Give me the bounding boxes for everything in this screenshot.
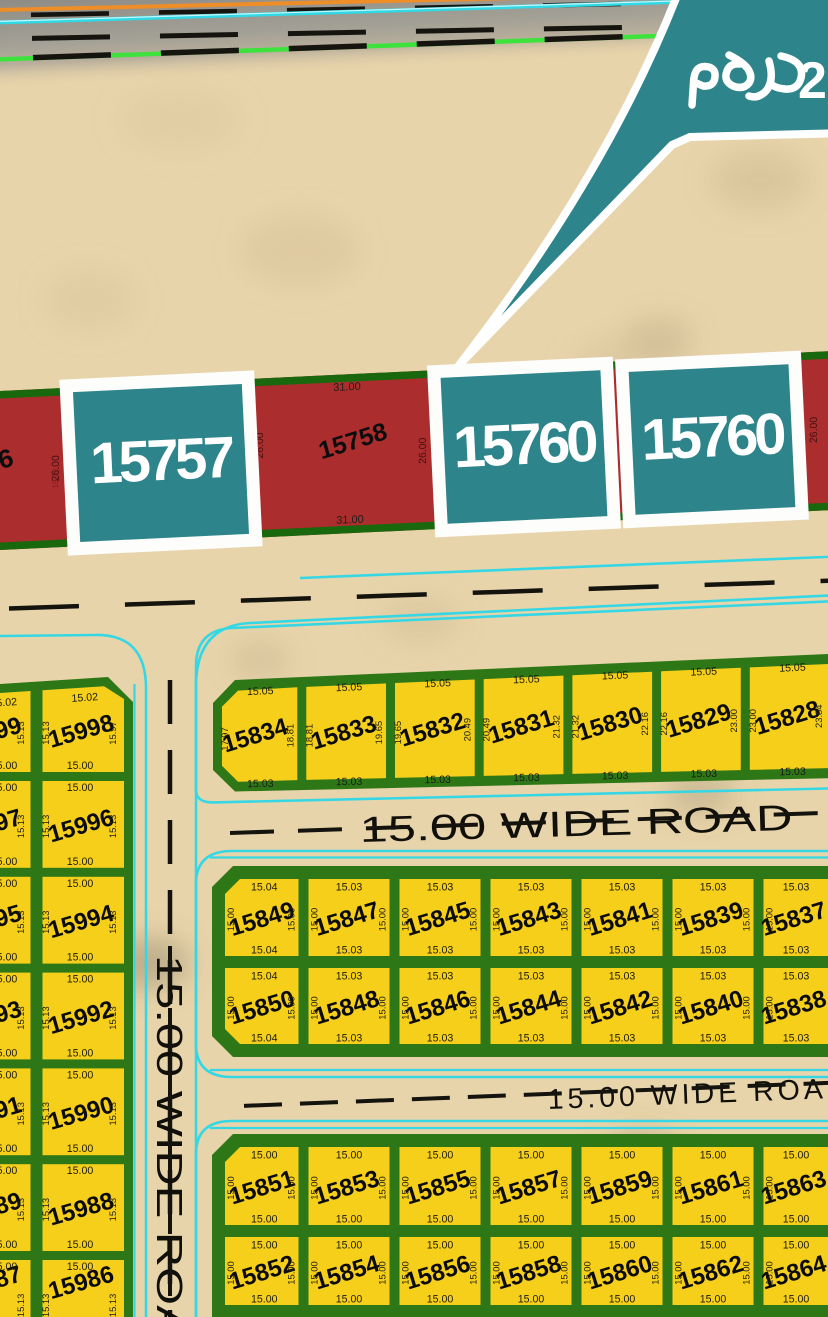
svg-text:15.00: 15.00	[0, 1047, 17, 1059]
svg-text:26.00: 26.00	[808, 416, 820, 443]
svg-text:19.32: 19.32	[51, 468, 60, 489]
svg-text:15.00: 15.00	[582, 996, 593, 1019]
svg-text:15.03: 15.03	[700, 945, 727, 957]
svg-text:15.00: 15.00	[559, 908, 570, 931]
svg-text:15.00: 15.00	[491, 996, 502, 1019]
svg-text:15.00: 15.00	[673, 1261, 684, 1284]
svg-text:15.00: 15.00	[251, 1240, 278, 1252]
svg-text:15.03: 15.03	[513, 772, 540, 785]
svg-text:15.00: 15.00	[225, 996, 236, 1019]
svg-text:15.00: 15.00	[673, 1176, 684, 1199]
svg-text:15.03: 15.03	[690, 768, 717, 781]
svg-text:15.00: 15.00	[336, 1294, 363, 1306]
svg-text:15757: 15757	[89, 425, 235, 497]
svg-text:15.00: 15.00	[518, 1240, 545, 1252]
svg-text:15.13: 15.13	[107, 815, 118, 838]
svg-text:22.16: 22.16	[658, 712, 669, 735]
svg-text:15.00: 15.00	[582, 908, 593, 931]
svg-text:15.00: 15.00	[518, 1214, 545, 1226]
svg-text:15.00: 15.00	[0, 1143, 17, 1155]
svg-text:21.32: 21.32	[569, 715, 580, 738]
svg-text:15.00: 15.00	[0, 952, 17, 964]
svg-text:15.00: 15.00	[491, 908, 502, 931]
svg-text:20.49: 20.49	[481, 718, 492, 741]
svg-text:15.05: 15.05	[513, 673, 540, 686]
svg-text:15.03: 15.03	[700, 1033, 727, 1045]
svg-text:15.13: 15.13	[107, 1294, 118, 1317]
svg-text:15.13: 15.13	[15, 1198, 26, 1221]
svg-text:15.00: 15.00	[783, 1294, 810, 1306]
svg-text:15.03: 15.03	[336, 776, 363, 789]
svg-text:15.00: 15.00	[468, 1176, 479, 1199]
svg-text:15.13: 15.13	[15, 1102, 26, 1125]
svg-text:15.00: 15.00	[0, 1165, 17, 1177]
svg-text:15.00: 15.00	[609, 1294, 636, 1306]
svg-text:21.32: 21.32	[550, 715, 561, 738]
svg-text:15.00: 15.00	[225, 908, 236, 931]
svg-text:18.81: 18.81	[284, 724, 295, 747]
svg-text:20.49: 20.49	[462, 718, 473, 741]
svg-text:15.13: 15.13	[15, 815, 26, 838]
svg-text:15.03: 15.03	[518, 945, 545, 957]
svg-text:15.00: 15.00	[400, 1261, 411, 1284]
svg-text:15.00: 15.00	[67, 856, 94, 868]
svg-text:15.00: 15.00	[491, 1261, 502, 1284]
svg-text:15.05: 15.05	[247, 685, 274, 698]
svg-text:15.00: 15.00	[700, 1240, 727, 1252]
svg-text:15.00: 15.00	[427, 1214, 454, 1226]
svg-text:15.00: 15.00	[67, 760, 94, 772]
svg-text:15.00: 15.00	[67, 974, 94, 986]
svg-text:15760: 15760	[452, 409, 598, 481]
svg-text:15.00: 15.00	[286, 996, 297, 1019]
svg-text:15.05: 15.05	[335, 681, 362, 694]
svg-text:15.00: 15.00	[309, 1176, 320, 1199]
svg-text:15.03: 15.03	[427, 882, 454, 894]
svg-text:15.00: 15.00	[518, 1294, 545, 1306]
svg-text:31.00: 31.00	[333, 381, 361, 394]
svg-text:15.00: 15.00	[582, 1176, 593, 1199]
svg-text:15.00: 15.00	[427, 1240, 454, 1252]
svg-text:15.00: 15.00	[377, 996, 388, 1019]
svg-text:15.00: 15.00	[427, 1150, 454, 1162]
svg-text:18.81: 18.81	[303, 724, 314, 747]
svg-text:15.00: 15.00	[673, 908, 684, 931]
svg-text:15.04: 15.04	[251, 971, 278, 983]
svg-text:15.00: 15.00	[764, 908, 775, 931]
svg-text:15.00: 15.00	[0, 1261, 17, 1273]
svg-text:15.00: 15.00	[673, 996, 684, 1019]
svg-text:15.00: 15.00	[427, 1294, 454, 1306]
svg-text:15.00: 15.00	[609, 1214, 636, 1226]
svg-text:15.00: 15.00	[609, 1150, 636, 1162]
svg-text:15.03: 15.03	[783, 945, 810, 957]
svg-text:15.02: 15.02	[71, 691, 98, 705]
svg-text:15.00: 15.00	[286, 1261, 297, 1284]
svg-text:15.13: 15.13	[15, 1006, 26, 1029]
svg-text:15.00: 15.00	[609, 1240, 636, 1252]
svg-text:15.00: 15.00	[468, 1261, 479, 1284]
svg-text:15.00: 15.00	[650, 1176, 661, 1199]
svg-text:15.13: 15.13	[107, 910, 118, 933]
svg-text:15.13: 15.13	[107, 1198, 118, 1221]
svg-text:15.00: 15.00	[0, 878, 17, 890]
svg-text:15.00: 15.00	[764, 1176, 775, 1199]
svg-text:15.00: 15.00	[741, 1176, 752, 1199]
svg-text:15.00: 15.00	[286, 908, 297, 931]
svg-text:15.00: 15.00	[251, 1214, 278, 1226]
svg-text:19.65: 19.65	[392, 721, 403, 744]
svg-text:15.00: 15.00	[309, 908, 320, 931]
svg-text:15.00: 15.00	[67, 1239, 94, 1251]
svg-text:15.00: 15.00	[67, 1165, 94, 1177]
svg-text:22.16: 22.16	[639, 712, 650, 735]
svg-text:15.04: 15.04	[251, 1033, 278, 1045]
svg-text:15.00: 15.00	[377, 1261, 388, 1284]
svg-text:15.00: 15.00	[468, 908, 479, 931]
svg-text:15.00: 15.00	[0, 1239, 17, 1251]
svg-text:15.13: 15.13	[15, 1294, 26, 1317]
svg-text:15760: 15760	[640, 401, 786, 473]
svg-text:15.00: 15.00	[518, 1150, 545, 1162]
svg-text:15.03: 15.03	[518, 971, 545, 983]
svg-text:15.05: 15.05	[602, 669, 629, 682]
svg-text:15.03: 15.03	[783, 882, 810, 894]
svg-text:15.03: 15.03	[424, 774, 451, 787]
svg-text:15.00: 15.00	[700, 1294, 727, 1306]
svg-text:15.00: 15.00	[225, 1261, 236, 1284]
svg-text:15.00: 15.00	[650, 908, 661, 931]
svg-text:15.00: 15.00	[783, 1214, 810, 1226]
svg-text:23.00: 23.00	[728, 709, 739, 732]
svg-text:15.03: 15.03	[336, 945, 363, 957]
svg-text:15.00: 15.00	[251, 1150, 278, 1162]
svg-text:15.13: 15.13	[107, 1006, 118, 1029]
svg-text:15.03: 15.03	[609, 971, 636, 983]
svg-text:15.03: 15.03	[779, 766, 806, 779]
svg-text:15.03: 15.03	[247, 778, 274, 791]
svg-text:15.04: 15.04	[251, 882, 278, 894]
svg-text:19.65: 19.65	[373, 721, 384, 744]
svg-text:15.03: 15.03	[427, 971, 454, 983]
svg-text:15.03: 15.03	[336, 971, 363, 983]
svg-text:23.00: 23.00	[747, 709, 758, 732]
svg-text:15.00: 15.00	[225, 1176, 236, 1199]
svg-text:15.00: 15.00	[741, 996, 752, 1019]
svg-text:15.00: 15.00	[0, 760, 17, 772]
svg-text:15.03: 15.03	[609, 1033, 636, 1045]
svg-text:15.00: 15.00	[67, 1047, 94, 1059]
svg-text:15.00: 15.00	[650, 996, 661, 1019]
svg-text:15.00: 15.00	[559, 1176, 570, 1199]
svg-text:15.00: 15.00	[559, 1261, 570, 1284]
svg-text:15.03: 15.03	[700, 971, 727, 983]
svg-text:15.00: 15.00	[67, 952, 94, 964]
svg-text:15.00: 15.00	[700, 1150, 727, 1162]
svg-text:15.03: 15.03	[609, 882, 636, 894]
svg-text:15.13: 15.13	[107, 1102, 118, 1125]
svg-text:15.00: 15.00	[377, 908, 388, 931]
svg-text:15.00: 15.00	[741, 908, 752, 931]
svg-text:15.03: 15.03	[336, 1033, 363, 1045]
svg-text:15.00: 15.00	[309, 1261, 320, 1284]
svg-text:26.00: 26.00	[417, 437, 429, 464]
svg-text:15.05: 15.05	[424, 677, 451, 690]
svg-text:15.03: 15.03	[602, 770, 629, 783]
svg-text:17.97: 17.97	[219, 727, 230, 750]
svg-text:15.00: 15.00	[251, 1294, 278, 1306]
svg-text:15.03: 15.03	[700, 882, 727, 894]
svg-text:31.00: 31.00	[336, 514, 364, 527]
svg-text:15.00: 15.00	[491, 1176, 502, 1199]
svg-text:15.00: 15.00	[0, 1069, 17, 1081]
svg-text:15.00: 15.00	[764, 1261, 775, 1284]
svg-text:15.00: 15.00	[336, 1240, 363, 1252]
svg-text:15.03: 15.03	[427, 1033, 454, 1045]
svg-text:15.00: 15.00	[286, 1176, 297, 1199]
svg-text:15.00: 15.00	[400, 996, 411, 1019]
svg-text:15.00: 15.00	[582, 1261, 593, 1284]
svg-text:15.05: 15.05	[779, 662, 806, 675]
svg-text:15.00: 15.00	[0, 856, 17, 868]
svg-text:15.00: 15.00	[309, 996, 320, 1019]
svg-text:15.03: 15.03	[783, 971, 810, 983]
svg-text:15.00: 15.00	[377, 1176, 388, 1199]
svg-text:15.00: 15.00	[67, 1069, 94, 1081]
svg-text:15.00: 15.00	[67, 782, 94, 794]
svg-text:15.13: 15.13	[15, 910, 26, 933]
svg-text:15.00: 15.00	[468, 996, 479, 1019]
svg-text:15.97: 15.97	[107, 721, 118, 744]
svg-text:15.00: 15.00	[400, 908, 411, 931]
svg-text:15.00: 15.00	[700, 1214, 727, 1226]
svg-text:15.03: 15.03	[427, 945, 454, 957]
svg-text:15.05: 15.05	[690, 665, 717, 678]
svg-text:15.00: 15.00	[400, 1176, 411, 1199]
svg-text:15.00: 15.00	[67, 1143, 94, 1155]
svg-text:15.00: 15.00	[0, 974, 17, 986]
svg-text:15.00: 15.00	[336, 1214, 363, 1226]
svg-text:15.00: 15.00	[650, 1261, 661, 1284]
svg-text:15.00: 15.00	[0, 782, 17, 794]
svg-text:2,0: 2,0	[798, 52, 828, 110]
svg-text:15.03: 15.03	[336, 882, 363, 894]
svg-text:15.00: 15.00	[741, 1261, 752, 1284]
svg-text:15.00: 15.00	[783, 1240, 810, 1252]
svg-text:23.84: 23.84	[813, 705, 824, 728]
svg-text:15.00: 15.00	[336, 1150, 363, 1162]
svg-text:15.00: 15.00	[67, 1261, 94, 1273]
svg-text:15.02: 15.02	[0, 696, 18, 710]
svg-text:15.13: 15.13	[15, 721, 26, 744]
svg-text:15.00: 15.00	[67, 878, 94, 890]
svg-text:15.00: 15.00	[783, 1150, 810, 1162]
svg-text:15.03: 15.03	[783, 1033, 810, 1045]
svg-text:15.03: 15.03	[518, 882, 545, 894]
svg-text:15.04: 15.04	[251, 945, 278, 957]
svg-text:15.03: 15.03	[518, 1033, 545, 1045]
svg-text:15.03: 15.03	[609, 945, 636, 957]
svg-text:15.00: 15.00	[559, 996, 570, 1019]
svg-text:15.00: 15.00	[764, 996, 775, 1019]
